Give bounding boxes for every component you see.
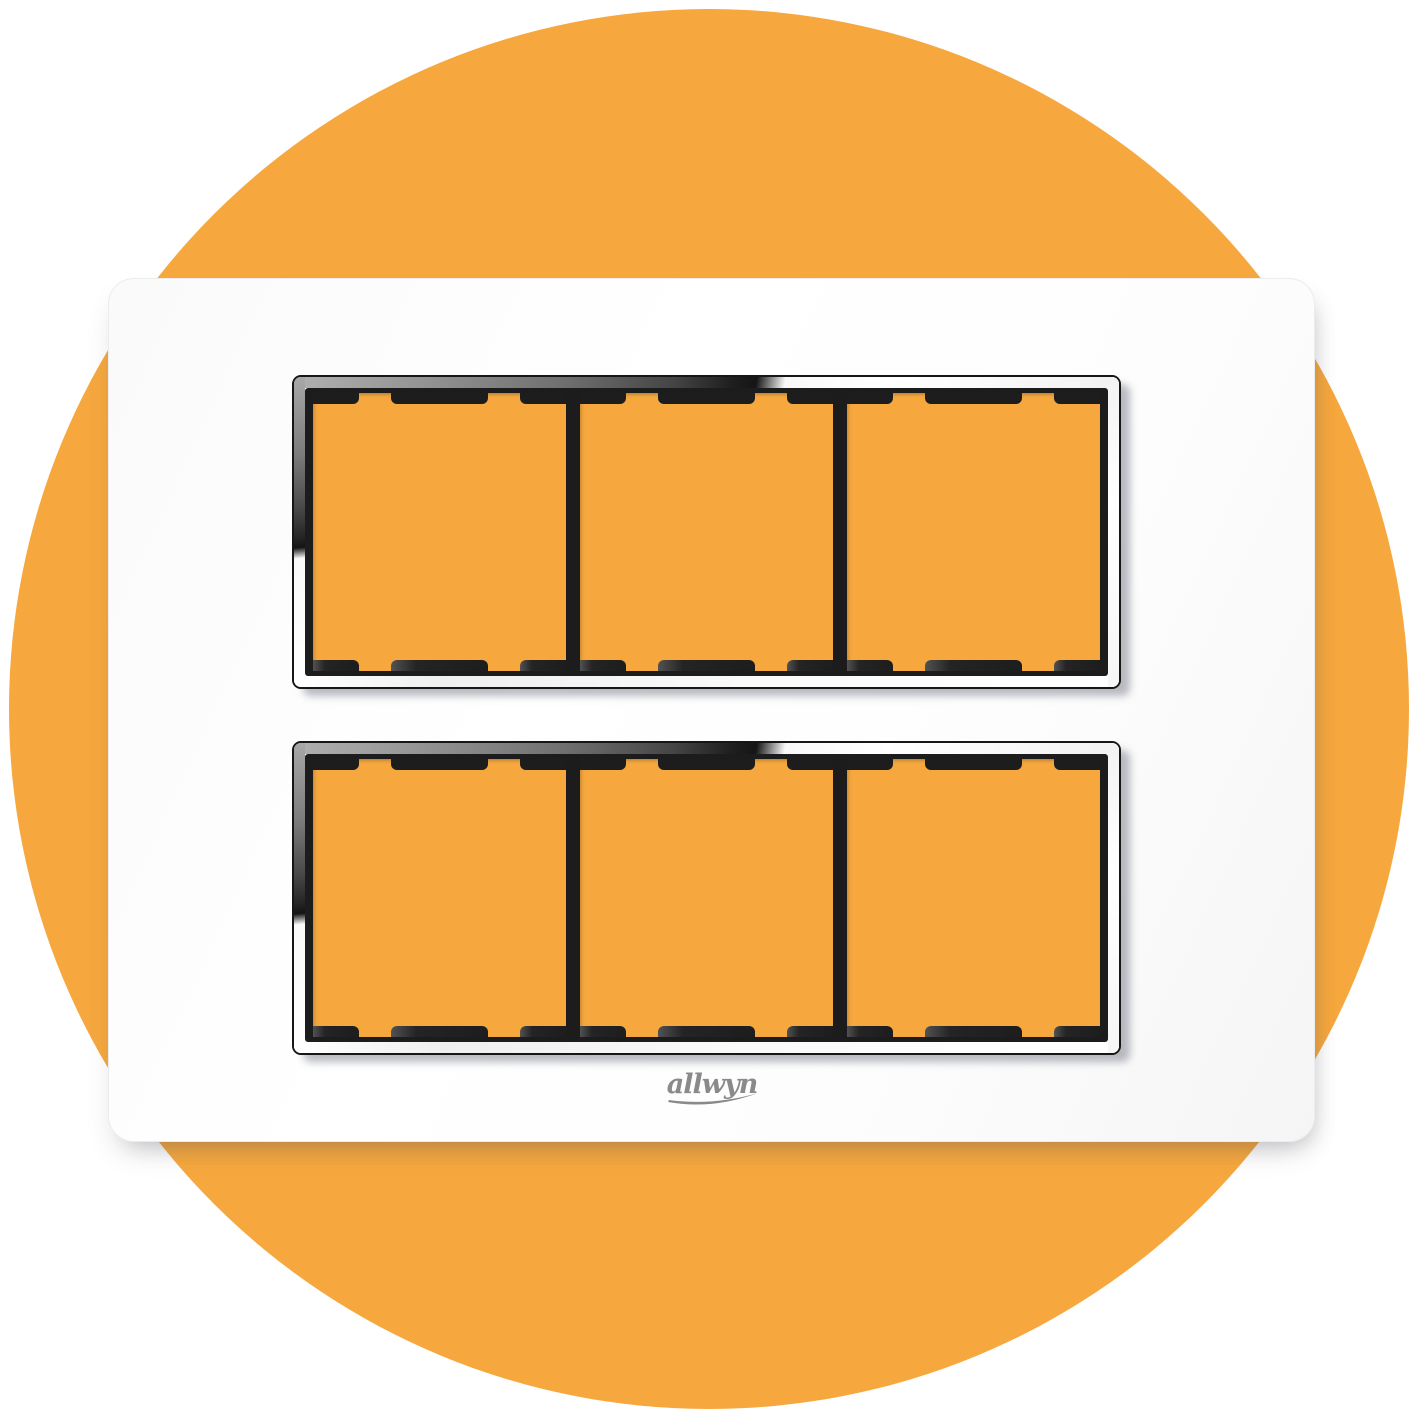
- module-clip-tab: [847, 393, 893, 404]
- module-clip-tab: [658, 393, 754, 404]
- module-clip-tab: [925, 393, 1021, 404]
- module-clip-tab: [313, 1026, 359, 1037]
- module-clip-tab: [847, 660, 893, 671]
- chrome-edge-right: [1108, 743, 1119, 1053]
- module-clip-tab: [925, 759, 1021, 770]
- module-clip-tab: [787, 1026, 833, 1037]
- brand-logo-text: allwyn: [666, 1069, 757, 1100]
- module-clip-tab: [787, 660, 833, 671]
- module-clip-tab: [658, 1026, 754, 1037]
- module-clip-tab: [1054, 393, 1100, 404]
- module-clip-tab: [520, 759, 566, 770]
- module-window: [847, 759, 1100, 1037]
- module-clip-tab: [520, 1026, 566, 1037]
- module-clip-tab: [1054, 759, 1100, 770]
- chrome-edge-left: [294, 743, 305, 1053]
- module-clip-tab: [580, 759, 626, 770]
- module-clip-tab: [787, 393, 833, 404]
- module-window: [580, 393, 833, 671]
- module-clip-tab: [391, 759, 487, 770]
- module-window: [580, 759, 833, 1037]
- module-frame-top: [292, 375, 1121, 689]
- frame-inner: [305, 754, 1108, 1042]
- chrome-edge-right: [1108, 377, 1119, 687]
- module-clip-tab: [580, 660, 626, 671]
- module-clip-tab: [391, 660, 487, 671]
- module-clip-tab: [580, 1026, 626, 1037]
- product-image: allwyn: [0, 0, 1418, 1418]
- module-clip-tab: [658, 660, 754, 671]
- module-clip-tab: [313, 393, 359, 404]
- module-clip-tab: [925, 660, 1021, 671]
- module-clip-tab: [1054, 660, 1100, 671]
- module-window: [313, 393, 566, 671]
- chrome-edge-bottom: [294, 1042, 1119, 1053]
- chrome-edge-bottom: [294, 676, 1119, 687]
- frame-inner: [305, 388, 1108, 676]
- module-clip-tab: [520, 660, 566, 671]
- chrome-edge-top: [294, 743, 1119, 754]
- module-clip-tab: [1054, 1026, 1100, 1037]
- module-clip-tab: [520, 393, 566, 404]
- module-clip-tab: [847, 1026, 893, 1037]
- module-clip-tab: [787, 759, 833, 770]
- module-clip-tab: [658, 759, 754, 770]
- module-clip-tab: [580, 393, 626, 404]
- brand-logo: allwyn: [109, 1065, 1314, 1113]
- chrome-edge-top: [294, 377, 1119, 388]
- chrome-edge-left: [294, 377, 305, 687]
- module-window: [313, 759, 566, 1037]
- module-clip-tab: [313, 660, 359, 671]
- module-clip-tab: [391, 393, 487, 404]
- module-window: [847, 393, 1100, 671]
- module-clip-tab: [391, 1026, 487, 1037]
- module-clip-tab: [925, 1026, 1021, 1037]
- brand-logo-graphic: allwyn: [656, 1066, 768, 1112]
- module-clip-tab: [313, 759, 359, 770]
- module-clip-tab: [847, 759, 893, 770]
- module-frame-bottom: [292, 741, 1121, 1055]
- switch-plate: allwyn: [108, 278, 1315, 1142]
